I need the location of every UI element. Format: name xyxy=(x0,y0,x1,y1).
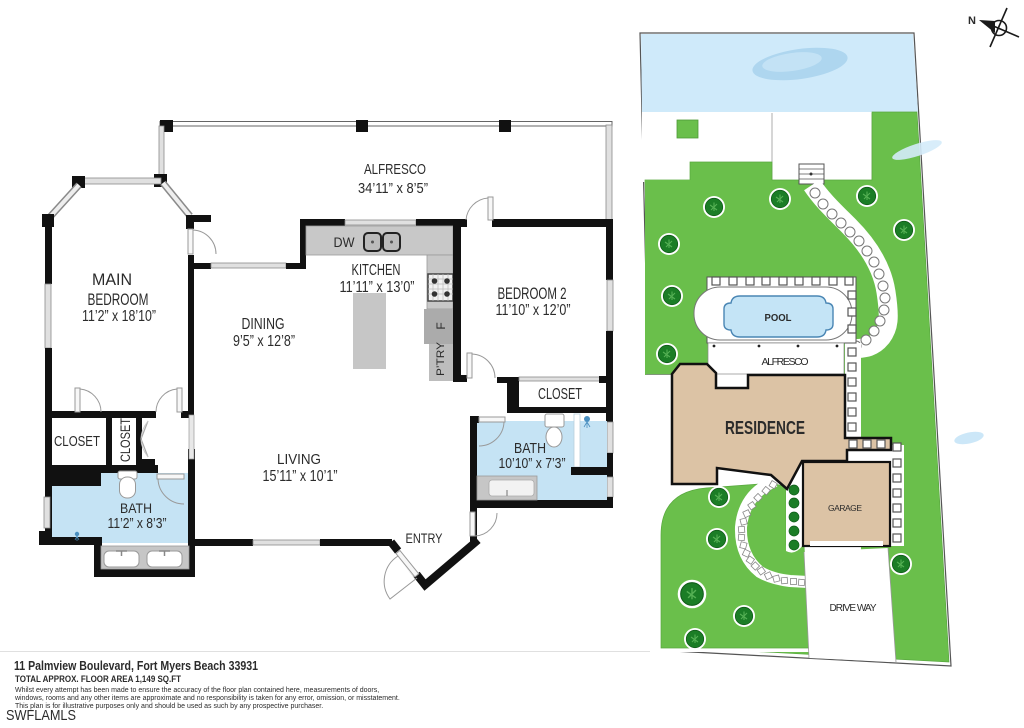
svg-text:BEDROOM: BEDROOM xyxy=(88,291,149,309)
svg-text:DINING: DINING xyxy=(242,316,285,333)
svg-text:BEDROOM 2: BEDROOM 2 xyxy=(498,285,567,303)
svg-text:ALFRESCO: ALFRESCO xyxy=(364,161,426,178)
svg-text:KITCHEN: KITCHEN xyxy=(352,262,401,279)
svg-text:CLOSET: CLOSET xyxy=(117,418,133,462)
svg-text:9’5” x 12’8”: 9’5” x 12’8” xyxy=(233,333,295,350)
svg-text:CLOSET: CLOSET xyxy=(538,386,582,403)
svg-text:Whilst every attempt has been: Whilst every attempt has been made to en… xyxy=(15,687,379,694)
svg-text:10’10” x 7’3”: 10’10” x 7’3” xyxy=(499,456,566,472)
svg-text:BATH: BATH xyxy=(514,440,546,457)
svg-text:11’10” x 12’0”: 11’10” x 12’0” xyxy=(496,302,571,319)
svg-text:TOTAL APPROX. FLOOR AREA 1,149: TOTAL APPROX. FLOOR AREA 1,149 SQ.FT xyxy=(15,674,181,684)
svg-text:ENTRY: ENTRY xyxy=(406,531,443,546)
svg-text:DW: DW xyxy=(334,234,356,250)
svg-text:DRIVE WAY: DRIVE WAY xyxy=(830,603,877,614)
svg-text:windows, rooms and any other i: windows, rooms and any other items are a… xyxy=(14,695,400,702)
svg-text:11’2” x 8’3”: 11’2” x 8’3” xyxy=(108,516,167,532)
svg-text:MAIN: MAIN xyxy=(92,271,132,289)
svg-text:P’TRY: P’TRY xyxy=(435,341,447,376)
svg-text:11 Palmview Boulevard, Fort My: 11 Palmview Boulevard, Fort Myers Beach … xyxy=(14,658,258,673)
svg-text:ALFRESCO: ALFRESCO xyxy=(762,356,809,368)
svg-text:15’11” x 10’1”: 15’11” x 10’1” xyxy=(263,468,338,485)
svg-text:11’2” x 18’10”: 11’2” x 18’10” xyxy=(82,308,156,325)
svg-text:POOL: POOL xyxy=(765,313,792,324)
svg-text:CLOSET: CLOSET xyxy=(54,433,100,450)
svg-text:LIVING: LIVING xyxy=(277,451,321,468)
svg-text:GARAGE: GARAGE xyxy=(828,503,862,513)
svg-text:BATH: BATH xyxy=(120,501,152,516)
svg-text:F: F xyxy=(434,322,448,329)
svg-text:34’11” x 8’5”: 34’11” x 8’5” xyxy=(358,180,428,197)
svg-text:SWFLAMLS: SWFLAMLS xyxy=(6,707,76,723)
svg-text:RESIDENCE: RESIDENCE xyxy=(725,418,805,438)
svg-text:N: N xyxy=(968,15,976,27)
